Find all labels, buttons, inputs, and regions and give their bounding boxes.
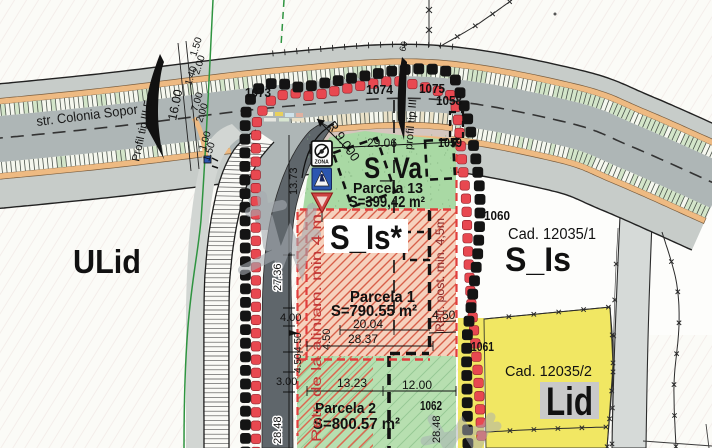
svg-text:27.36: 27.36: [272, 263, 284, 291]
svg-text:1074: 1074: [366, 82, 394, 97]
svg-text:1059: 1059: [438, 135, 462, 150]
svg-text:Lid: Lid: [546, 380, 593, 424]
svg-text:28.37: 28.37: [348, 332, 378, 346]
svg-text:28.48: 28.48: [272, 416, 284, 444]
svg-text:ZONA: ZONA: [315, 160, 330, 166]
svg-text:3.00: 3.00: [276, 376, 297, 388]
svg-text:S_Is*: S_Is*: [330, 219, 403, 257]
svg-text:12.00: 12.00: [402, 378, 432, 392]
svg-text:1062: 1062: [420, 398, 442, 413]
svg-text:20.04: 20.04: [353, 317, 383, 331]
svg-text:ULid: ULid: [73, 243, 141, 280]
svg-text:29.06: 29.06: [367, 136, 397, 150]
svg-text:S=399,42 m²: S=399,42 m²: [349, 194, 425, 211]
svg-text:S=800.57 m²: S=800.57 m²: [313, 416, 400, 433]
svg-text:4.50: 4.50: [293, 353, 304, 373]
svg-text:1058: 1058: [436, 93, 462, 108]
svg-text:28.48: 28.48: [431, 415, 443, 443]
svg-text:4.00: 4.00: [280, 312, 301, 324]
svg-text:Retr. de la aliniam. min 4 m: Retr. de la aliniam. min 4 m: [308, 214, 324, 442]
svg-text:1073: 1073: [245, 85, 271, 100]
svg-text:1060: 1060: [484, 209, 510, 223]
svg-text:Parcela 2: Parcela 2: [315, 400, 376, 417]
svg-text:Retr. post. min. 4,5m: Retr. post. min. 4,5m: [433, 218, 447, 332]
svg-text:S_Is: S_Is: [505, 241, 571, 279]
svg-text:1061: 1061: [471, 339, 494, 354]
svg-text:Cad. 12035/1: Cad. 12035/1: [508, 226, 596, 243]
svg-text:13.73: 13.73: [288, 167, 300, 195]
svg-text:13.23: 13.23: [337, 376, 367, 390]
svg-text:Cad. 12035/2: Cad. 12035/2: [505, 364, 592, 380]
svg-text:4.50: 4.50: [293, 332, 304, 352]
